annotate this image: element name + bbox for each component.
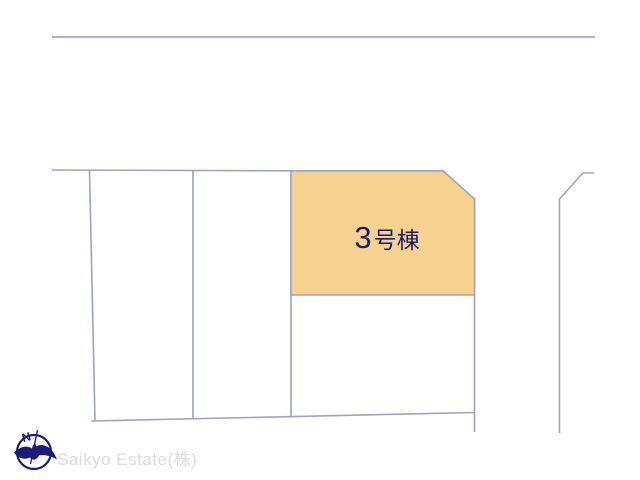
- lot-boundary-left: [90, 170, 96, 421]
- lot-boundary-bottom: [92, 413, 475, 422]
- company-watermark: Saikyo Estate(株): [57, 445, 197, 470]
- lot-boundary-top: [52, 170, 291, 171]
- compass: N: [14, 429, 57, 469]
- compass-north-label: N: [20, 429, 32, 445]
- lot-3-label-number: 3: [354, 220, 371, 255]
- neighbor-lot-outline: [560, 173, 595, 433]
- site-plan-drawing: 3号棟 N: [0, 0, 640, 480]
- lot-3-label-suffix: 号棟: [374, 227, 420, 253]
